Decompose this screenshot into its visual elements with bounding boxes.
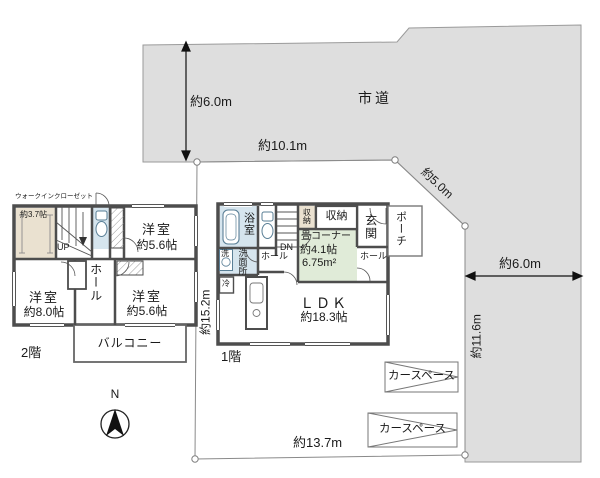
washroom-label: 洗面所: [237, 248, 246, 275]
car-space-2-label: カースペース: [368, 423, 457, 435]
bath-label: 浴室: [242, 212, 254, 236]
tatami-size: 約4.1帖: [300, 245, 337, 257]
laundry-label: 洗: [221, 250, 229, 258]
site-plan-drawing: [0, 0, 600, 478]
bedroom-se-size: 約5.6帖: [117, 305, 177, 318]
floor-plan-canvas: 市道 約6.0m 約10.1m 約5.0m 約6.0m 約11.6m 約15.2…: [0, 0, 600, 478]
bedroom-se-name: 洋室: [117, 290, 177, 304]
car-space-1-label: カースペース: [385, 370, 458, 382]
entrance-label: 玄関: [364, 214, 377, 240]
compass-icon: [101, 409, 129, 438]
ldk-name: ＬＤＫ: [288, 296, 360, 311]
dim-bottom: 約13.7m: [293, 436, 342, 450]
floor1-label: 1階: [221, 350, 241, 364]
dn-hall-label: ホール: [261, 252, 288, 261]
tatami-name: 畳コーナー: [301, 232, 351, 243]
closet-hatched-se: [117, 261, 143, 275]
hall1-label: ホール: [360, 252, 387, 261]
balcony-label: バルコニー: [80, 337, 180, 350]
dim-top-left: 約6.0m: [190, 95, 232, 109]
porch-label: ポーチ: [394, 211, 406, 247]
kitchen-island: [246, 277, 267, 329]
dim-left-side: 約15.2m: [200, 282, 213, 342]
fridge-label: 冷: [222, 280, 230, 288]
compass-label: N: [105, 388, 125, 401]
bedroom-ne-name: 洋室: [125, 223, 189, 237]
stairs-arrow: [79, 237, 87, 246]
stairs-up-label: UP: [57, 243, 70, 252]
toilet1-icon: [262, 212, 273, 239]
closet-hall: [68, 261, 86, 289]
hall2-label: ホール: [89, 263, 102, 302]
wic-size: 約3.7帖: [20, 211, 47, 219]
toilet2-icon: [96, 211, 107, 237]
wic-title: ウォークインクローゼット: [15, 194, 93, 201]
dim-top: 約10.1m: [258, 139, 307, 153]
storage-small-label: 収納: [302, 208, 310, 224]
bathtub-icon: [223, 210, 239, 244]
ldk-size: 約18.3帖: [288, 311, 360, 324]
road-label: 市道: [358, 91, 392, 106]
bedroom-sw-name: 洋室: [14, 291, 74, 305]
dim-right: 約6.0m: [499, 257, 541, 271]
storage-wide-label: 収納: [316, 211, 357, 223]
bedroom-ne-size: 約5.6帖: [125, 239, 189, 252]
dim-right-side: 約11.6m: [471, 306, 484, 366]
tatami-area: 6.75m²: [302, 258, 336, 270]
floor2-label: 2階: [21, 346, 41, 360]
bedroom-sw-size: 約8.0帖: [14, 306, 74, 319]
closet-hatched-ne: [111, 208, 124, 248]
